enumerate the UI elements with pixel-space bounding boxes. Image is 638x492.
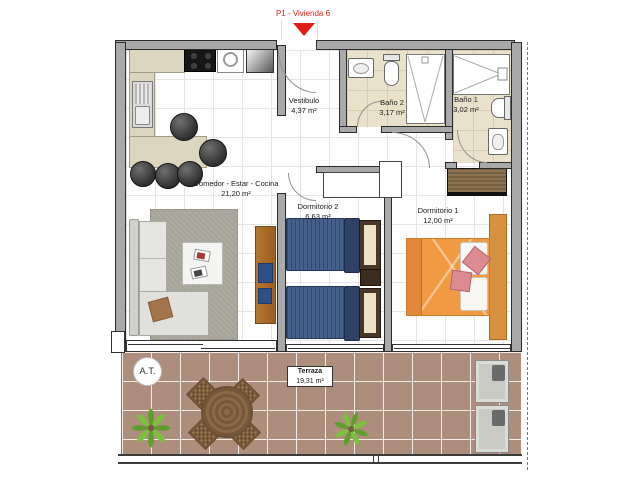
- bed-headboard-panel: [489, 214, 507, 340]
- terrace-table: [201, 386, 253, 438]
- kitchen-sink: [132, 81, 153, 128]
- wall-right: [511, 42, 522, 352]
- nightstand: [360, 269, 381, 286]
- washer: [217, 47, 244, 73]
- boundary-dashed-line: [527, 42, 528, 470]
- palm-plant-icon: [331, 409, 371, 449]
- magazine: [193, 249, 211, 263]
- terrace-sliding-door: [126, 340, 277, 352]
- sink-drainboard: [135, 84, 150, 104]
- bar-stool: [130, 161, 156, 187]
- bathroom2-sink: [348, 58, 374, 78]
- wardrobe: [447, 168, 507, 196]
- room-label-dorm1: Dormitorio 1 12,00 m²: [418, 206, 459, 226]
- single-bed: [286, 218, 345, 271]
- bedroom2-window: [286, 344, 384, 352]
- floor-plan: P1 - Vivienda 6: [0, 0, 638, 492]
- console-drawer: [258, 263, 273, 283]
- at-badge: A.T.: [133, 357, 162, 386]
- fridge: [246, 47, 274, 73]
- window-pane: [288, 348, 384, 349]
- bar-stool: [199, 139, 227, 167]
- lounge-chair-pillow: [492, 410, 505, 426]
- shower-tray-icon: [454, 55, 509, 94]
- wall-top-left: [115, 40, 277, 50]
- terrace-railing: [118, 454, 522, 464]
- headboard: [359, 220, 381, 270]
- headboard: [359, 288, 381, 338]
- lounge-chair: [475, 405, 509, 453]
- railing-post: [373, 456, 379, 462]
- bar-stool: [170, 113, 198, 141]
- wall-vestibule-bath2: [339, 49, 347, 132]
- magazine-cover: [196, 252, 205, 259]
- bedroom1-window: [392, 344, 511, 352]
- bathroom1-sink: [488, 128, 508, 155]
- bathroom2-toilet-tank: [383, 54, 400, 61]
- hall-closet-tall: [379, 161, 402, 198]
- sliding-panel: [201, 348, 276, 349]
- wall-left: [115, 42, 126, 352]
- stove: [184, 47, 216, 72]
- room-label-bano1: Baño 1 3,02 m²: [453, 95, 478, 115]
- palm-plant-icon: [128, 406, 174, 450]
- sink-bowl: [135, 106, 150, 125]
- magazine: [190, 265, 208, 279]
- bathroom1-toilet-tank: [504, 96, 511, 120]
- wall-bath1-bottom: [445, 162, 457, 169]
- room-label-vestibulo: Vestibulo 4,37 m²: [289, 96, 319, 116]
- headboard-pad: [364, 225, 376, 265]
- sink-basin: [492, 134, 504, 150]
- sink-basin: [353, 63, 369, 74]
- single-bed: [286, 286, 345, 339]
- bathroom1-shower: [453, 54, 510, 95]
- bathroom1-toilet: [491, 98, 505, 118]
- wall-bath1-bottom: [479, 162, 512, 169]
- bed-bolster: [344, 218, 360, 273]
- bathroom2-shower: [406, 54, 445, 124]
- room-label-dorm2: Dormitorio 2 6,63 m²: [298, 202, 339, 222]
- coffee-table: [182, 242, 223, 285]
- sofa-back: [129, 219, 139, 336]
- console-drawer: [258, 288, 272, 304]
- lounge-chair: [475, 360, 509, 403]
- bathroom2-toilet: [384, 61, 399, 86]
- entrance-marker-label: P1 - Vivienda 6: [276, 9, 330, 18]
- lounge-chair-pillow: [492, 365, 505, 381]
- bed-bolster: [344, 286, 360, 341]
- room-label-comedor: Comedor - Estar - Cocina 21,20 m²: [193, 179, 278, 199]
- room-label-bano2: Baño 2 3,17 m²: [379, 98, 404, 118]
- media-console: [255, 226, 276, 324]
- pink-cushion: [450, 270, 473, 293]
- shower-tray-icon: [407, 55, 444, 123]
- window-left: [111, 331, 125, 353]
- wall-living-bedroom2: [277, 193, 286, 352]
- window-pane: [394, 348, 511, 349]
- wall-bath2-bottom: [339, 126, 357, 133]
- hall-closet: [323, 172, 381, 198]
- entrance-guide-lines: [281, 21, 318, 40]
- washer-door-icon: [223, 52, 238, 67]
- sliding-panel: [128, 344, 203, 345]
- kitchen-counter-top: [129, 47, 185, 73]
- headboard-pad: [364, 293, 376, 333]
- room-label-terraza: Terraza 19,31 m²: [287, 366, 333, 387]
- sofa-chaise: [139, 291, 209, 336]
- magazine-cover: [194, 269, 203, 277]
- bed-blanket-edge: [407, 239, 422, 315]
